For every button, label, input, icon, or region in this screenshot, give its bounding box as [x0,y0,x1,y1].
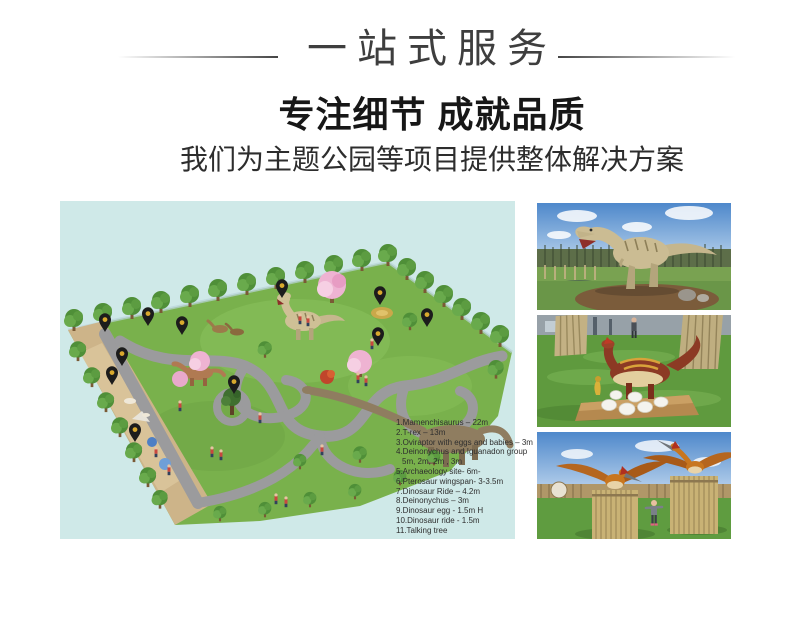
legend-line: 3.Oviraptor with eggs and babies – 3m [396,438,514,448]
legend-line: 8.Deinonychus – 3m [396,496,514,506]
legend-line: 10.Dinosaur ride - 1.5m [396,516,514,526]
trex-display-photo [537,203,731,310]
legend-line: 5.Archaeology site- 6m- [396,467,514,477]
section-subheading: 我们为主题公园等项目提供整体解决方案 [32,138,800,178]
oviraptor-eggs-photo [537,315,731,427]
section-heading: 专注细节 成就品质 [32,86,800,138]
park-plan-panel: 1.Mamenchisaurus – 22m 2.T-rex – 13m 3.O… [60,201,515,539]
legend-line: 7.Dinosaur Ride – 4.2m [396,487,514,497]
legend-line: 5m, 2m, 2m , 3m [396,457,514,467]
promo-section: 一站式服务 专注细节 成就品质 我们为主题公园等项目提供整体解决方案 [0,0,800,626]
park-plan-legend: 1.Mamenchisaurus – 22m 2.T-rex – 13m 3.O… [396,418,514,536]
legend-line: 2.T-rex – 13m [396,428,514,438]
baby-dinosaur [594,376,601,395]
wood-pole-left [552,315,591,356]
log-pillar-left [592,490,638,539]
banner-title: 一站式服务 [32,26,800,72]
legend-line: 1.Mamenchisaurus – 22m [396,418,514,428]
log-pillar-right [670,476,718,534]
legend-line: 4.Deinonychus and Iguanadon group [396,447,514,457]
legend-line: 11.Talking tree [396,526,514,536]
title-flourish-line-right [558,56,735,58]
photo-column [537,203,731,544]
legend-line: 6.Pterosaur wingspan- 3-3.5m [396,477,514,487]
pterosaur-posts-photo [537,432,731,539]
legend-line: 9.Dinosaur egg - 1.5m H [396,506,514,516]
title-flourish-line-left [118,56,278,58]
